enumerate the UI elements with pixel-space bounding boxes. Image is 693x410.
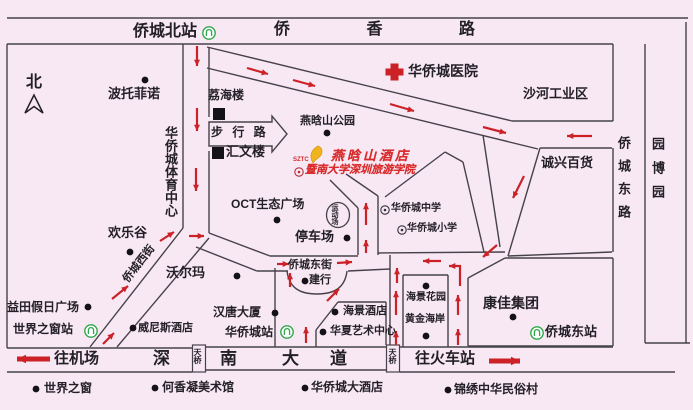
flow-arrow-head (393, 291, 399, 297)
road-line (348, 269, 390, 271)
road-line (468, 258, 505, 278)
footbridge-label-1: 天桥 (193, 348, 201, 364)
splendid-china-label: 锦绣中华民俗村 (454, 383, 538, 396)
middle-school-label: 华侨城中学 (391, 204, 441, 215)
primary-school-label: 华侨城小学 (407, 224, 457, 235)
qiaocheng-east-street-label: 侨城东街 (288, 260, 332, 272)
poi-dot (344, 235, 351, 242)
poi-dot (142, 77, 149, 84)
sztc-label: SZTC (293, 157, 309, 163)
pedestrian-road-label: 步 行 路 (211, 126, 269, 139)
flow-arrow-head (511, 357, 520, 366)
poi-dot (33, 386, 40, 393)
hospital-cross-icon (386, 64, 403, 80)
road-line (346, 174, 378, 196)
college-icon-dot (298, 171, 301, 174)
poi-dot (510, 314, 517, 321)
konka-group-label: 康佳集团 (483, 296, 539, 311)
flow-arrow-head (363, 203, 369, 209)
sports-center-label: 华侨城体育中心 (164, 126, 177, 217)
metro-icon (203, 27, 215, 39)
shahe-industrial-label: 沙河工业区 (523, 87, 588, 101)
haijing-hotel-label: 海景酒店 (343, 306, 387, 318)
road-line (445, 152, 463, 162)
shennan-road-label-dao: 道 (330, 350, 347, 368)
poi-dot (423, 333, 430, 340)
parking-label: 停车场 (295, 230, 334, 244)
flow-arrow-head (194, 60, 200, 66)
lihailou-label: 荔海楼 (208, 89, 244, 102)
yitian-plaza-label: 益田假日广场 (7, 301, 79, 314)
flow-arrow-head (394, 268, 400, 274)
yanhanshan-park-label: 燕晗山公园 (300, 116, 355, 128)
flow-arrow-head (193, 185, 199, 191)
metro-icon (531, 327, 543, 339)
flow-arrow-turn (449, 266, 460, 286)
map-canvas: 侨 香 路侨城北站北波托菲诺荔海楼步 行 路汇文楼燕晗山公园SZTC燕晗山酒店暨… (0, 0, 693, 410)
poi-square (213, 108, 225, 120)
poi-dot (127, 249, 134, 256)
shennan-road-label-nan: 南 (220, 350, 237, 368)
poi-dot (302, 385, 309, 392)
college-label: 暨南大学深圳旅游学院 (305, 165, 415, 177)
hotel-logo-icon (311, 146, 322, 163)
road-line (508, 252, 612, 256)
road-line (463, 162, 484, 252)
walmart-label: 沃尔玛 (166, 266, 205, 280)
oct-grand-hotel-label: 华侨城大酒店 (311, 381, 383, 394)
jianhang-label: 建行 (309, 275, 331, 287)
haijing-garden-label: 海景花园 (406, 293, 446, 304)
north-arrow-icon (25, 95, 43, 113)
road-line (483, 135, 500, 247)
window-world-station-label: 世界之窗站 (13, 323, 73, 336)
poi-dot (445, 387, 452, 394)
hexiangning-museum-label: 何香凝美术馆 (162, 381, 234, 394)
flow-arrow-head (567, 133, 573, 139)
poi-dot (274, 217, 281, 224)
qiaochengbei-station-label: 侨城北站 (133, 24, 197, 41)
north-label: 北 (26, 75, 42, 92)
poi-dot (320, 329, 327, 336)
hospital-label: 华侨城医院 (408, 64, 478, 79)
flow-arrow-head (455, 329, 461, 335)
footbridge-label-2: 天桥 (388, 348, 396, 364)
chengxing-store-label: 诚兴百货 (541, 156, 593, 170)
botuofeinuo-label: 波托菲诺 (108, 87, 160, 101)
road-line (508, 148, 540, 256)
flow-arrow-head (363, 240, 369, 246)
hotel-name-label: 燕晗山酒店 (331, 149, 411, 163)
qiaochengdong-station-label: 侨城东站 (545, 325, 597, 339)
poi-dot (302, 278, 309, 285)
stadium-label: 运动场 (331, 204, 338, 225)
qiaocheng-east-road-label: 侨城东路 (617, 136, 630, 228)
poi-dot (423, 283, 430, 290)
school-icon-dot (401, 229, 404, 232)
huiwenlou-label: 汇文楼 (226, 145, 265, 159)
golden-coast-label: 黄金海岸 (405, 315, 445, 326)
metro-icon (281, 326, 293, 338)
to-airport-label: 往机场 (54, 351, 99, 367)
venice-hotel-label: 威尼斯酒店 (138, 323, 193, 335)
shennan-road-label-da: 大 (282, 350, 299, 368)
qiaoxiang-road-label: 侨 香 路 (274, 22, 511, 39)
yuanboyuan-label: 园博园 (651, 137, 664, 209)
school-icon-dot (384, 209, 387, 212)
poi-dot (324, 130, 331, 137)
flow-arrow-head (423, 258, 429, 264)
road-line (207, 47, 512, 121)
poi-dot (234, 273, 241, 280)
hantang-tower-label: 汉唐大厦 (213, 306, 261, 319)
oct-plaza-label: OCT生态广场 (231, 198, 304, 211)
qiaocheng-station-label: 华侨城站 (225, 326, 273, 339)
window-of-world-label: 世界之窗 (44, 382, 92, 395)
poi-dot (152, 385, 159, 392)
poi-dot (130, 325, 137, 332)
flow-arrow-head (455, 295, 461, 301)
poi-dot (272, 310, 279, 317)
metro-icon (85, 325, 97, 337)
happy-valley-label: 欢乐谷 (108, 226, 147, 240)
flow-arrow-head (17, 355, 26, 364)
road-line (209, 233, 270, 256)
flow-arrow-head (194, 125, 200, 131)
flow-arrow-head (449, 263, 455, 269)
poi-dot (332, 309, 339, 316)
stadium-circle (327, 203, 350, 228)
flow-arrow-head (198, 233, 204, 239)
poi-square (212, 147, 224, 159)
to-railway-label: 往火车站 (415, 351, 475, 367)
huaxia-art-center-label: 华夏艺术中心 (330, 326, 396, 338)
shennan-road-label-shen: 深 (153, 350, 170, 368)
road-line (196, 247, 257, 271)
flow-arrow-head (346, 259, 353, 265)
flow-arrow-head (303, 327, 309, 333)
poi-dot (85, 304, 92, 311)
